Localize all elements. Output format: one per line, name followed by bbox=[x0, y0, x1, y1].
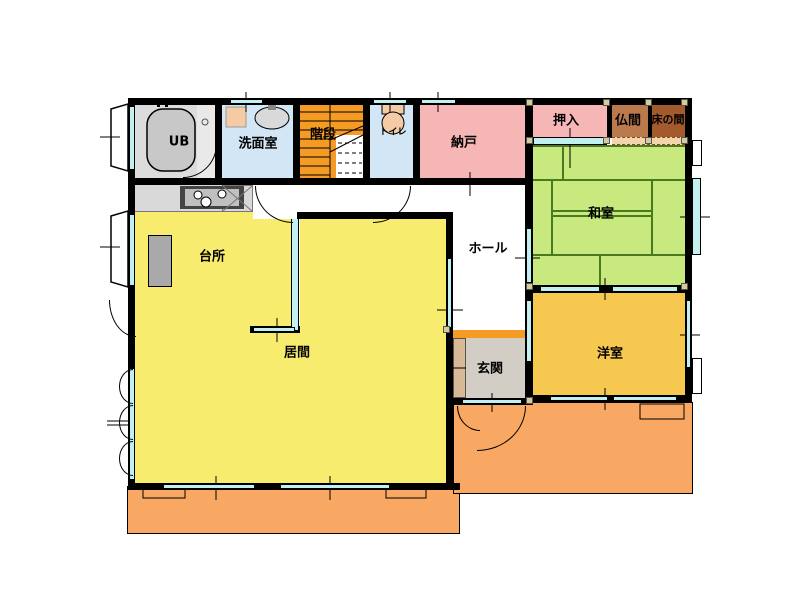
window-washitsu-bottom-1 bbox=[540, 286, 600, 292]
window-youshitsu-right bbox=[686, 300, 691, 368]
entrance-door-strip bbox=[462, 399, 522, 404]
post bbox=[526, 99, 533, 106]
window-toilet-top bbox=[373, 99, 407, 104]
bay-window-ub bbox=[100, 104, 128, 171]
window-washroom-top bbox=[230, 99, 263, 104]
room-label-hall: ホール bbox=[468, 238, 507, 257]
shutter-box-top bbox=[692, 140, 702, 166]
post bbox=[526, 137, 533, 144]
post bbox=[526, 397, 533, 404]
post bbox=[645, 99, 652, 106]
room-label-living: 居間 bbox=[284, 342, 310, 361]
washroom-sink bbox=[255, 105, 289, 129]
window-washitsu-bottom-2 bbox=[612, 286, 678, 292]
post bbox=[526, 283, 533, 290]
room-label-butsuma: 仏間 bbox=[615, 110, 641, 129]
post bbox=[645, 137, 652, 144]
post bbox=[603, 99, 610, 106]
room-label-oshiire: 押入 bbox=[553, 110, 579, 129]
shutter-box-bottom bbox=[692, 358, 702, 394]
post bbox=[681, 99, 688, 106]
window-living-right bbox=[447, 258, 452, 328]
window-nando-top bbox=[421, 99, 456, 104]
room-label-washroom: 洗面室 bbox=[238, 133, 277, 152]
room-label-genkan: 玄関 bbox=[477, 358, 503, 377]
washing-machine bbox=[226, 107, 246, 127]
window-washitsu-right bbox=[692, 178, 701, 255]
room-label-tokonoma: 床の間 bbox=[652, 111, 685, 127]
wall-washroom-stairs bbox=[293, 98, 300, 185]
window-living-bottom-1 bbox=[163, 484, 255, 489]
window-ub-bay bbox=[129, 106, 135, 170]
sliding-door-youshitsu-left bbox=[526, 300, 532, 362]
window-kitchen-bay bbox=[129, 214, 135, 286]
under-stair-dashes bbox=[338, 143, 362, 173]
opening-washitsu-hall bbox=[526, 228, 532, 283]
window-kitchen-stub bbox=[253, 327, 295, 332]
post bbox=[681, 137, 688, 144]
wall-stairs-toilet bbox=[363, 98, 370, 185]
room-label-kitchen: 台所 bbox=[199, 246, 225, 265]
room-label-toilet: トイレ bbox=[379, 125, 406, 138]
room-label-ub: UB bbox=[169, 135, 189, 150]
room-label-stairs: 階段 bbox=[310, 124, 336, 143]
wall-under-toprow bbox=[128, 178, 525, 185]
wall-toilet-nando bbox=[413, 98, 420, 185]
post bbox=[443, 326, 450, 333]
fusuma-oshiire bbox=[533, 137, 607, 145]
window-youshitsu-bottom-2 bbox=[613, 396, 677, 401]
kitchen-partition bbox=[291, 219, 299, 330]
post bbox=[681, 283, 688, 290]
stove bbox=[180, 186, 244, 209]
window-living-bottom-2 bbox=[280, 484, 390, 489]
bay-window-kitchen bbox=[100, 211, 128, 287]
window-youshitsu-bottom-1 bbox=[550, 396, 608, 401]
wall-ub-washroom bbox=[215, 98, 222, 185]
wall-living-right bbox=[446, 212, 453, 490]
room-label-youshitsu: 洋室 bbox=[597, 343, 623, 362]
wall-oshiire-butsuma bbox=[607, 105, 612, 138]
room-label-washitsu: 和室 bbox=[588, 203, 614, 222]
post bbox=[603, 137, 610, 144]
floor-plan: UB 洗面室 階段 トイレ 納戸 押入 仏間 床の間 和室 ホール 台所 居間 … bbox=[0, 0, 800, 600]
room-label-nando: 納戸 bbox=[451, 132, 477, 151]
